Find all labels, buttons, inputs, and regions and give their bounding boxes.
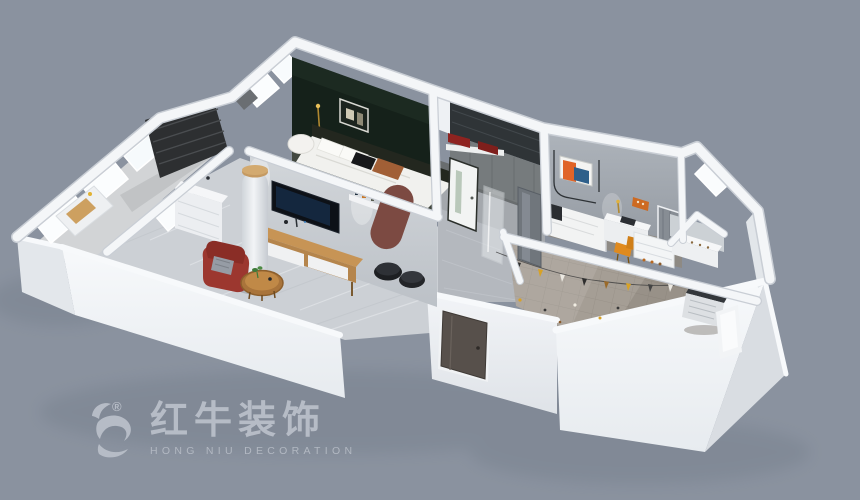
brand-name-cn: 红牛装饰 bbox=[150, 402, 356, 442]
door-glass-strip bbox=[455, 170, 462, 214]
tufted-cushion bbox=[288, 135, 314, 154]
brand-watermark: ® 红牛装饰 HONG NIU DECORATION bbox=[84, 400, 356, 458]
hall-wardrobe-mirror bbox=[518, 187, 541, 267]
registered-mark: ® bbox=[112, 399, 122, 414]
terrace-doorway bbox=[716, 305, 742, 359]
brand-name-en: HONG NIU DECORATION bbox=[150, 445, 356, 457]
bathroom-door bbox=[448, 158, 478, 231]
floorplan-render-scene: ® 红牛装饰 HONG NIU DECORATION bbox=[0, 0, 860, 500]
entry-door bbox=[438, 308, 490, 382]
shower-glass bbox=[482, 186, 504, 264]
bull-icon: ® bbox=[84, 400, 144, 458]
